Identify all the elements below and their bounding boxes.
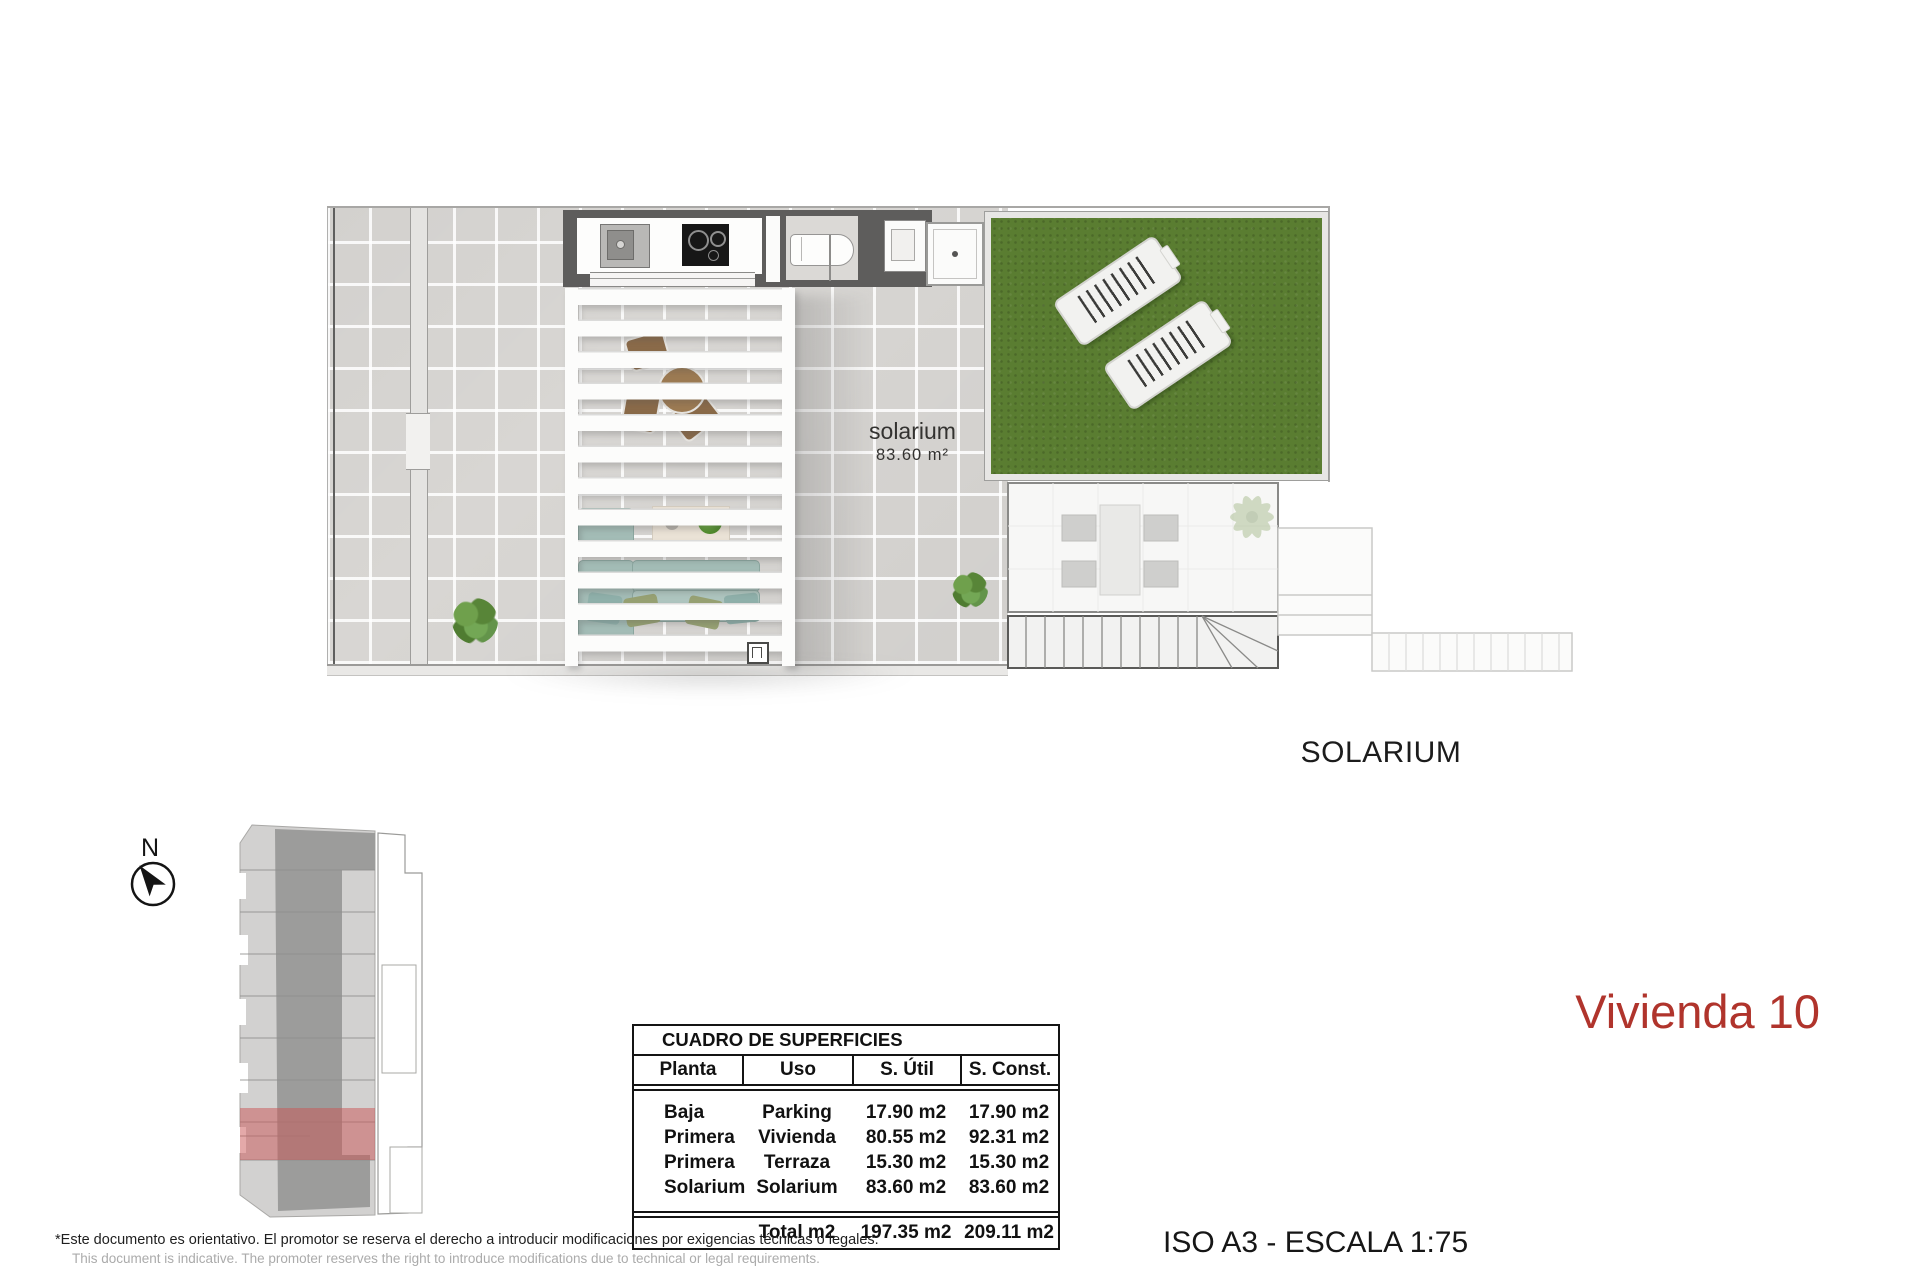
party-wall-line bbox=[333, 208, 335, 664]
unit-title: Vivienda 10 bbox=[1520, 984, 1820, 1039]
north-letter: N bbox=[141, 834, 159, 862]
potted-plant bbox=[452, 598, 498, 644]
skylight-symbol bbox=[747, 642, 769, 664]
col-header-planta: Planta bbox=[634, 1056, 742, 1084]
cell-util: 80.55 m2 bbox=[852, 1127, 960, 1149]
cell-uso: Terraza bbox=[742, 1152, 852, 1174]
cell-planta: Solarium bbox=[634, 1177, 742, 1199]
cell-planta: Primera bbox=[634, 1127, 742, 1149]
wall-niche bbox=[766, 216, 780, 282]
potted-plant-small bbox=[952, 572, 988, 608]
stairs-and-lower-terrace bbox=[1000, 475, 1585, 690]
table-body: Baja Parking 17.90 m2 17.90 m2 Primera V… bbox=[634, 1091, 1058, 1211]
induction-hob bbox=[682, 224, 729, 266]
cell-const: 17.90 m2 bbox=[960, 1102, 1058, 1124]
pergola-slats bbox=[565, 288, 795, 666]
plan-top-outline bbox=[327, 206, 1330, 208]
plan-sheet: solarium 83.60 m² SOLARIUM N bbox=[0, 0, 1920, 1280]
cell-util: 17.90 m2 bbox=[852, 1102, 960, 1124]
disclaimer-es: *Este documento es orientativo. El promo… bbox=[55, 1232, 879, 1248]
disclaimer-en: This document is indicative. The promote… bbox=[72, 1251, 820, 1266]
room-label: solarium bbox=[845, 418, 980, 445]
col-header-sconst: S. Const. bbox=[960, 1056, 1058, 1084]
cell-uso: Parking bbox=[742, 1102, 852, 1124]
sink-faucet bbox=[616, 240, 625, 249]
total-const: 209.11 m2 bbox=[960, 1222, 1058, 1244]
cell-const: 83.60 m2 bbox=[960, 1177, 1058, 1199]
plan-right-outline bbox=[1328, 206, 1330, 482]
table-row: Solarium Solarium 83.60 m2 83.60 m2 bbox=[634, 1175, 1058, 1200]
divider-wall-opening bbox=[406, 413, 430, 470]
cell-util: 83.60 m2 bbox=[852, 1177, 960, 1199]
pergola-shadow bbox=[790, 296, 900, 668]
wc-door-leaf bbox=[829, 235, 831, 281]
table-row: Baja Parking 17.90 m2 17.90 m2 bbox=[634, 1100, 1058, 1125]
cell-planta: Primera bbox=[634, 1152, 742, 1174]
format-scale-note: ISO A3 - ESCALA 1:75 bbox=[1163, 1226, 1483, 1260]
shower-tray bbox=[926, 222, 984, 286]
table-header-row: Planta Uso S. Útil S. Const. bbox=[634, 1056, 1058, 1084]
pergola-rail-right bbox=[782, 288, 795, 666]
cell-planta: Baja bbox=[634, 1102, 742, 1124]
col-header-uso: Uso bbox=[742, 1056, 852, 1084]
cell-util: 15.30 m2 bbox=[852, 1152, 960, 1174]
floor-caption: SOLARIUM bbox=[1256, 736, 1506, 770]
cell-uso: Vivienda bbox=[742, 1127, 852, 1149]
cell-const: 15.30 m2 bbox=[960, 1152, 1058, 1174]
table-title: CUADRO DE SUPERFICIES bbox=[634, 1026, 1058, 1056]
surfaces-table: CUADRO DE SUPERFICIES Planta Uso S. Útil… bbox=[632, 1024, 1060, 1250]
highlighted-unit bbox=[240, 1108, 375, 1160]
table-row: Primera Vivienda 80.55 m2 92.31 m2 bbox=[634, 1125, 1058, 1150]
key-plan bbox=[230, 815, 430, 1225]
table-separator bbox=[634, 1084, 1058, 1091]
pergola-rail-left bbox=[565, 288, 578, 666]
artificial-grass-area bbox=[985, 212, 1328, 480]
cell-uso: Solarium bbox=[742, 1177, 852, 1199]
cell-const: 92.31 m2 bbox=[960, 1127, 1058, 1149]
plan-left-outline bbox=[327, 208, 328, 664]
kitchen-sliding-door bbox=[590, 272, 755, 287]
parapet-shadow bbox=[500, 668, 920, 694]
north-compass: N bbox=[112, 828, 194, 920]
table-row: Primera Terraza 15.30 m2 15.30 m2 bbox=[634, 1150, 1058, 1175]
table-separator bbox=[634, 1211, 1058, 1218]
room-area-label: 83.60 m² bbox=[845, 446, 980, 465]
col-header-sutil: S. Útil bbox=[852, 1056, 960, 1084]
washbasin bbox=[884, 220, 926, 272]
toilet-fixture bbox=[790, 234, 854, 266]
